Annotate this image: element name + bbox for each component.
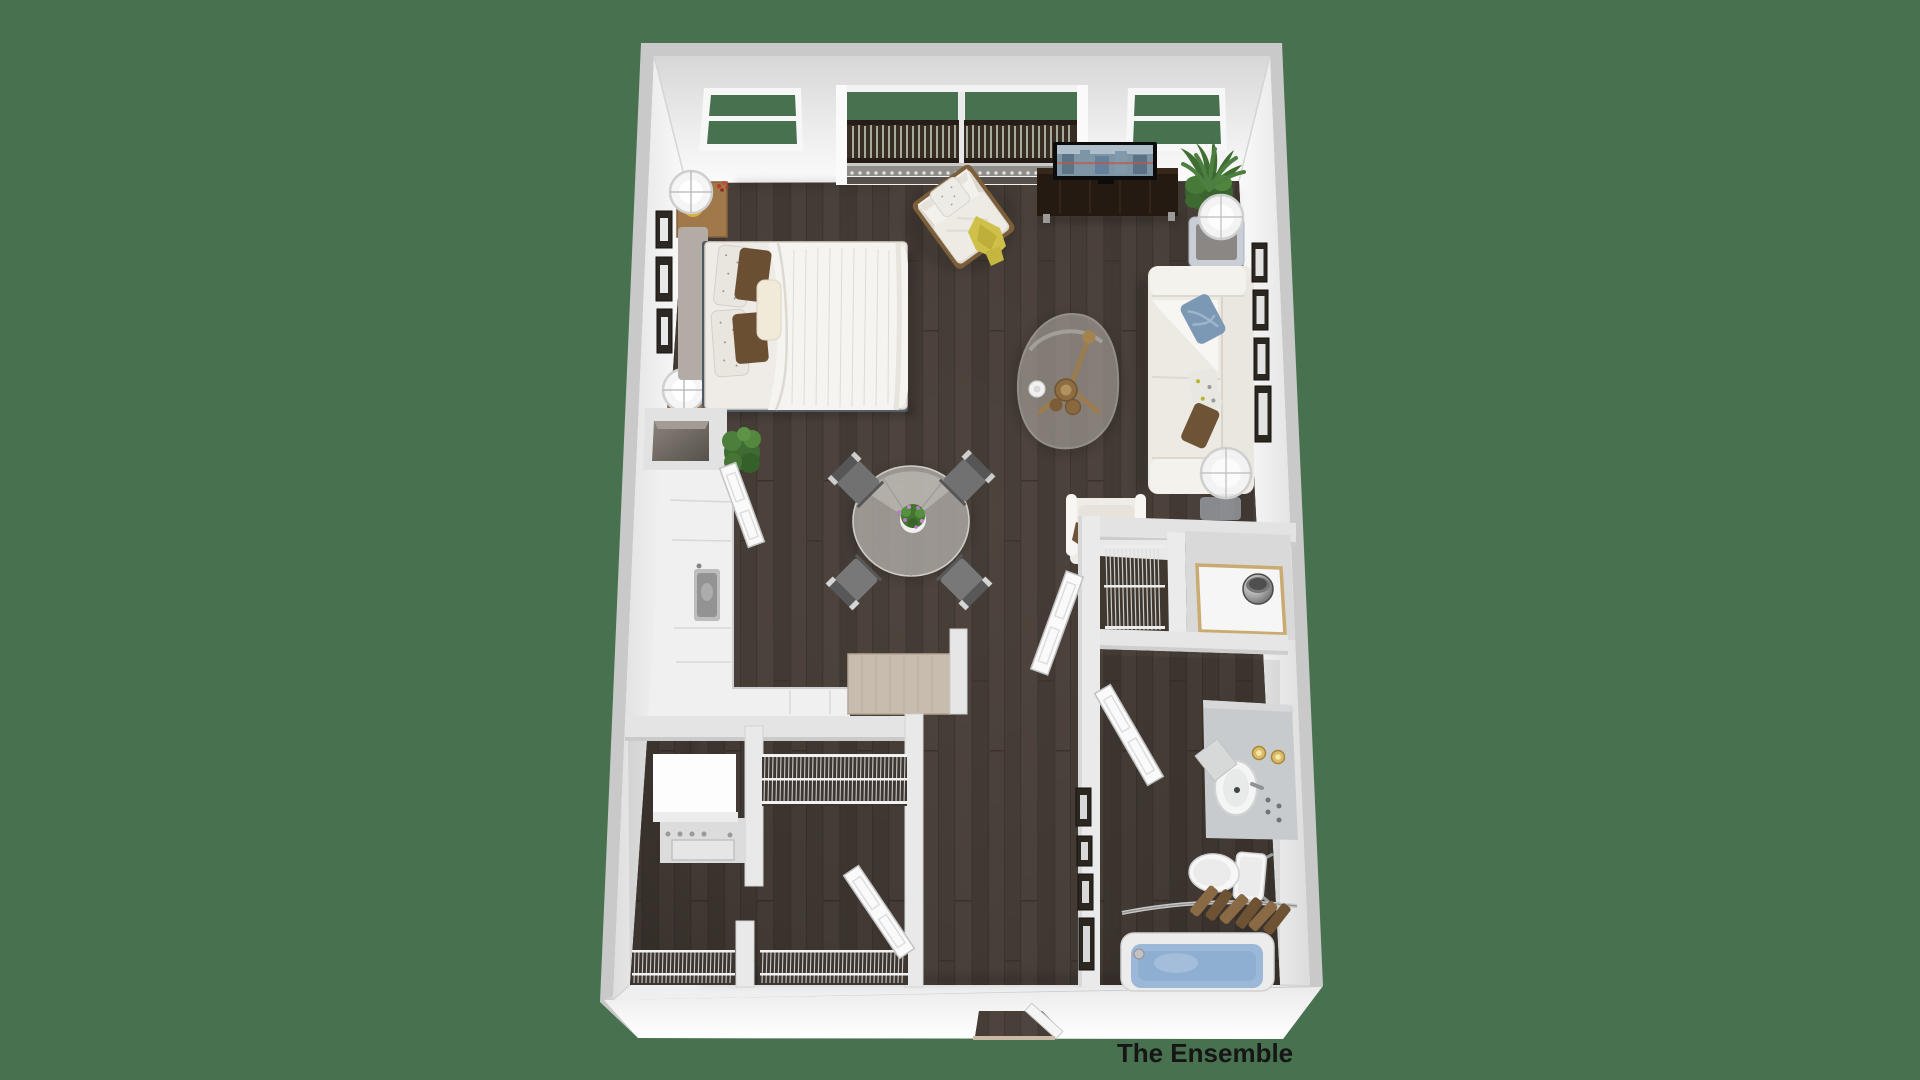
svg-text:The Ensemble: The Ensemble bbox=[1117, 1038, 1293, 1068]
